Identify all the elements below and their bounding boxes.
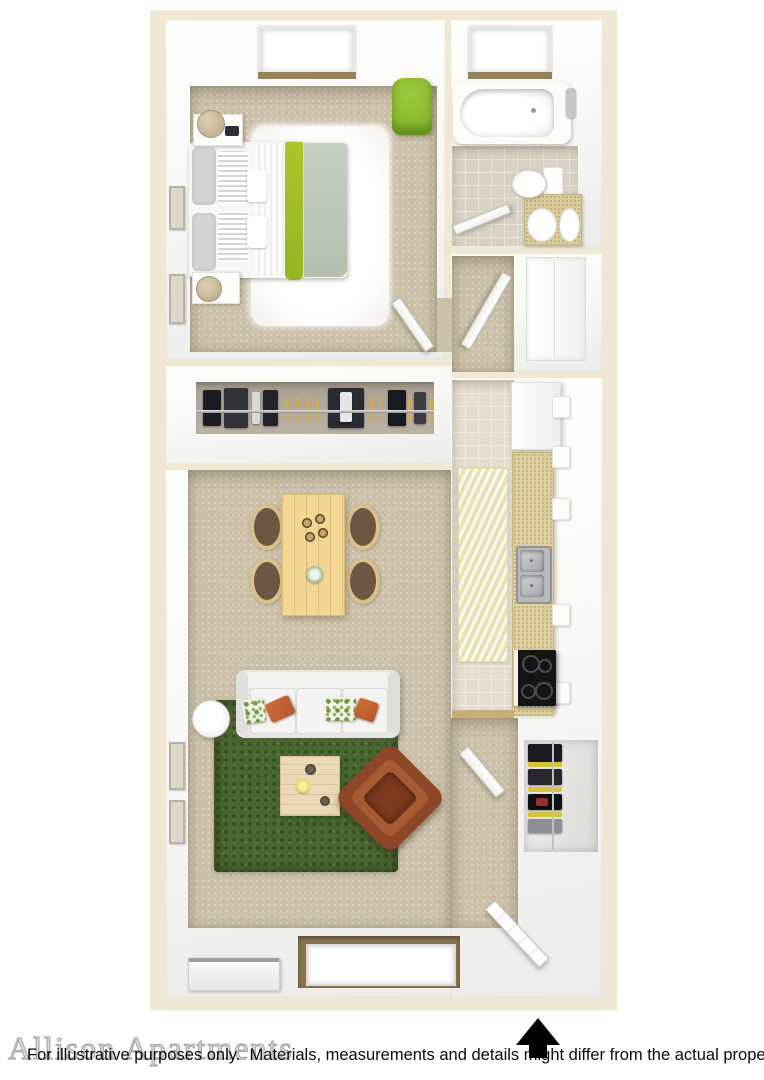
- north-arrow-icon: [516, 1018, 560, 1045]
- sink-basin: [520, 575, 544, 597]
- toilet: [512, 170, 546, 198]
- bathtub-drain: [531, 108, 536, 113]
- bedroom-window-sill: [258, 72, 356, 79]
- disclaimer-text: For illustrative purposes only. Material…: [27, 1046, 764, 1065]
- yellow-hanger: [528, 812, 562, 817]
- hanging-clothes: [252, 392, 260, 424]
- sink-drain: [530, 559, 533, 562]
- sage-blanket: [304, 143, 347, 277]
- yellow-dish: [296, 779, 310, 793]
- green-throw-blanket: [285, 142, 303, 280]
- bathroom-window: [468, 26, 552, 76]
- table-lamp: [197, 110, 225, 138]
- flower-vase: [306, 566, 323, 583]
- entry-closet-clothes: [528, 769, 562, 785]
- table-bowl: [315, 514, 325, 524]
- table-bowl: [302, 518, 312, 528]
- hanger: [306, 397, 309, 421]
- kitchen-double-sink: [516, 546, 552, 604]
- shower-fixture: [566, 88, 576, 118]
- yellow-hanger: [528, 762, 562, 767]
- vanity-sink: [527, 208, 557, 242]
- leaf-pattern-pillow: [241, 698, 266, 725]
- table-bowl: [305, 532, 315, 542]
- dining-chair: [250, 504, 284, 550]
- closet-rod: [196, 410, 434, 413]
- cabinet-door: [552, 498, 570, 520]
- pillow: [192, 147, 216, 205]
- dining-chair: [346, 504, 380, 550]
- hanging-clothes: [203, 390, 221, 426]
- framed-art-icon: [169, 186, 185, 230]
- decor-bowl: [305, 764, 316, 775]
- striped-pillow: [218, 211, 248, 263]
- hanger: [430, 397, 433, 421]
- cabinet-door: [552, 446, 570, 468]
- green-accent-chair: [392, 78, 432, 135]
- yellow-hanger: [528, 787, 562, 792]
- north-arrow-stem: [529, 1044, 547, 1058]
- kitchen-runner-rug: [458, 468, 508, 662]
- hanger: [296, 397, 299, 421]
- bathtub: [453, 82, 571, 144]
- phone: [225, 126, 239, 136]
- leaf-pattern-pillow: [324, 697, 356, 721]
- hanger: [370, 397, 373, 421]
- sink-basin: [520, 550, 544, 572]
- framed-art-icon: [169, 274, 185, 324]
- small-pillow: [247, 170, 267, 202]
- hanging-clothes: [414, 392, 426, 424]
- entry-closet-clothes: [536, 798, 548, 806]
- framed-art-icon: [169, 742, 185, 790]
- table-bowl: [318, 528, 328, 538]
- living-room-window: [306, 944, 456, 986]
- entry-closet-rod: [552, 742, 554, 850]
- table-lamp: [196, 276, 222, 302]
- floorplan-page: Allison Apartments For illustrative purp…: [0, 0, 764, 1080]
- bedroom-window: [258, 26, 356, 76]
- decor-bowl: [320, 796, 330, 806]
- hanging-clothes: [224, 388, 248, 428]
- hanging-clothes: [388, 390, 406, 426]
- wall-unit: [188, 958, 280, 991]
- entry-floor: [451, 718, 518, 928]
- range-stove: [514, 650, 556, 706]
- sofa-arm: [388, 672, 400, 734]
- hanger: [316, 397, 319, 421]
- burner: [521, 684, 536, 699]
- pantry-doors: [526, 257, 586, 361]
- sink-drain: [530, 584, 533, 587]
- small-pillow: [247, 216, 267, 248]
- dining-chair: [346, 558, 380, 604]
- vanity-sink: [559, 208, 580, 242]
- hanger: [379, 397, 382, 421]
- dining-chair: [250, 558, 284, 604]
- cabinet-door: [552, 396, 570, 418]
- hanging-clothes: [340, 392, 352, 422]
- dining-table: [281, 494, 345, 616]
- entry-closet-clothes: [528, 744, 562, 762]
- bathtub-basin: [460, 89, 554, 137]
- entry-closet-clothes: [528, 819, 562, 833]
- pantry-door-seam: [554, 259, 555, 357]
- hanger: [286, 397, 289, 421]
- hanging-clothes: [263, 390, 278, 426]
- burner: [535, 682, 553, 700]
- framed-art-icon: [169, 800, 185, 844]
- bedroom-doorway: [437, 298, 452, 352]
- round-floor-lamp: [192, 700, 230, 738]
- striped-pillow: [218, 151, 248, 205]
- kitchen-threshold: [452, 710, 514, 718]
- cabinet-door: [552, 604, 570, 626]
- bathroom-window-sill: [468, 72, 552, 79]
- burner: [538, 659, 552, 673]
- pillow: [192, 213, 216, 271]
- hanger: [408, 397, 411, 421]
- sofa-back: [242, 672, 394, 688]
